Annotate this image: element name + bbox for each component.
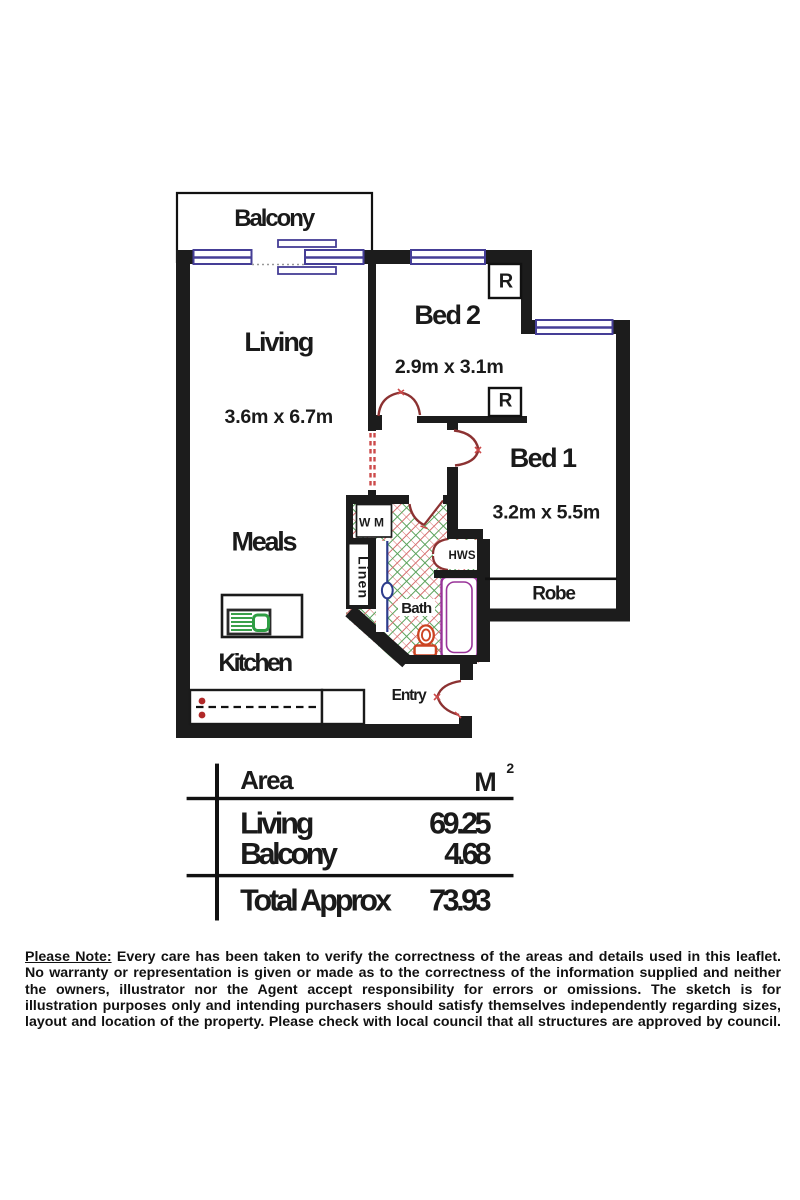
svg-text:R: R <box>499 271 514 293</box>
svg-text:Bed 1: Bed 1 <box>510 443 577 473</box>
svg-text:Robe: Robe <box>532 583 576 604</box>
svg-text:M: M <box>474 767 497 797</box>
svg-text:Meals: Meals <box>232 527 298 557</box>
svg-text:Kitchen: Kitchen <box>218 649 293 677</box>
svg-text:2.9m x 3.1m: 2.9m x 3.1m <box>395 356 504 378</box>
svg-text:4.68: 4.68 <box>444 837 491 871</box>
svg-text:Linen: Linen <box>356 556 372 598</box>
svg-text:Living: Living <box>244 327 314 357</box>
svg-text:Bath: Bath <box>401 600 432 617</box>
svg-text:Balcony: Balcony <box>234 205 316 232</box>
svg-text:Entry: Entry <box>392 687 428 704</box>
svg-text:3.6m x 6.7m: 3.6m x 6.7m <box>225 406 334 428</box>
svg-text:69.25: 69.25 <box>429 807 492 841</box>
svg-text:3.2m x 5.5m: 3.2m x 5.5m <box>493 501 601 523</box>
svg-text:Bed 2: Bed 2 <box>414 300 481 330</box>
svg-text:Area: Area <box>240 765 294 795</box>
svg-text:2: 2 <box>506 760 514 776</box>
svg-text:Living: Living <box>240 807 314 841</box>
svg-text:HWS: HWS <box>449 550 476 562</box>
svg-text:Total Approx: Total Approx <box>240 884 392 918</box>
svg-text:73.93: 73.93 <box>429 884 491 918</box>
svg-text:Balcony: Balcony <box>240 837 338 871</box>
svg-text:R: R <box>499 391 513 412</box>
